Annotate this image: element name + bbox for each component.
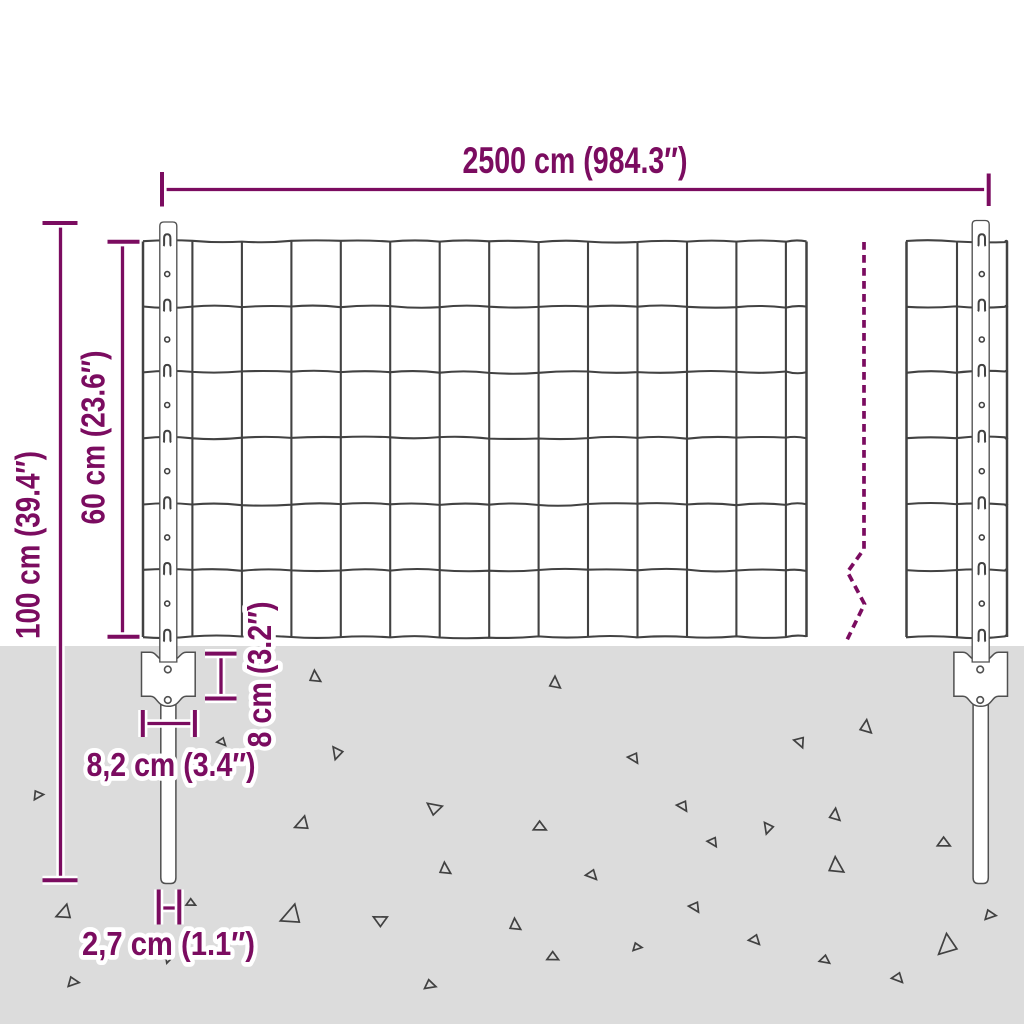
svg-text:8,2 cm (3.4″): 8,2 cm (3.4″) (87, 746, 256, 783)
svg-text:8 cm (3.2″): 8 cm (3.2″) (241, 602, 278, 748)
svg-text:2,7 cm (1.1″): 2,7 cm (1.1″) (82, 926, 255, 963)
svg-text:100 cm (39.4″): 100 cm (39.4″) (10, 451, 48, 639)
svg-text:2500 cm (984.3″): 2500 cm (984.3″) (463, 140, 688, 181)
svg-text:60 cm (23.6″): 60 cm (23.6″) (75, 351, 112, 525)
